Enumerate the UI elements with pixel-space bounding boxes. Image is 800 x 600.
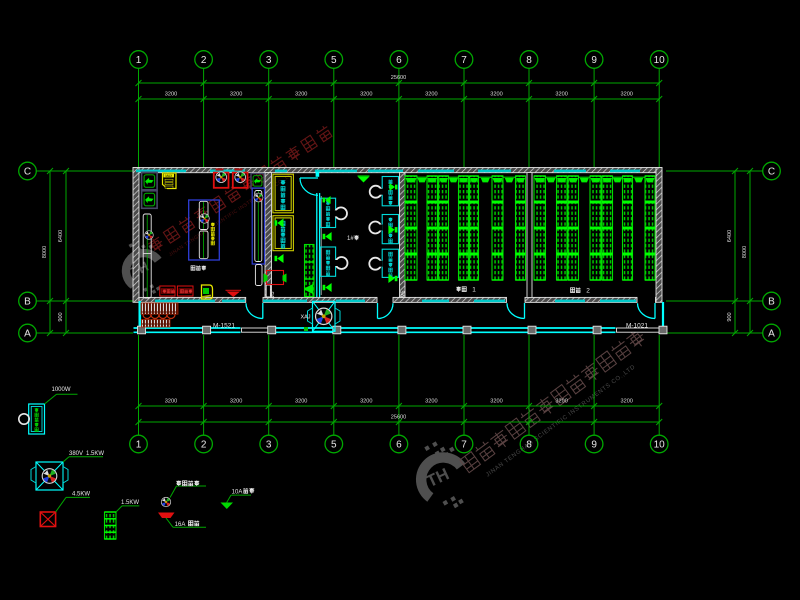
svg-text:A: A [24, 328, 31, 339]
svg-text:B: B [24, 296, 31, 307]
svg-text:4.5KW: 4.5KW [72, 492, 90, 498]
svg-text:5: 5 [331, 439, 337, 450]
svg-text:3200: 3200 [165, 399, 177, 405]
svg-text:M-1021: M-1021 [626, 323, 648, 330]
svg-text:9: 9 [591, 55, 597, 66]
svg-text:1.5KW: 1.5KW [121, 500, 139, 506]
svg-text:2: 2 [201, 439, 207, 450]
svg-text:10: 10 [654, 439, 666, 450]
svg-text:3200: 3200 [490, 92, 502, 98]
svg-text:3200: 3200 [360, 399, 372, 405]
svg-text:3200: 3200 [555, 399, 567, 405]
svg-text:6: 6 [396, 55, 402, 66]
svg-text:1#: 1# [347, 236, 354, 242]
svg-text:7: 7 [461, 55, 467, 66]
svg-text:8000: 8000 [742, 246, 748, 258]
svg-text:3200: 3200 [555, 92, 567, 98]
svg-text:1: 1 [136, 55, 142, 66]
svg-text:M-1521: M-1521 [213, 323, 235, 330]
svg-text:3: 3 [266, 439, 272, 450]
svg-text:1000W: 1000W [51, 387, 70, 393]
svg-text:9: 9 [591, 439, 597, 450]
svg-text:6: 6 [396, 439, 402, 450]
svg-text:6400: 6400 [727, 230, 733, 242]
svg-text:1: 1 [472, 287, 476, 294]
svg-text:3200: 3200 [230, 92, 242, 98]
svg-text:B: B [768, 296, 775, 307]
svg-text:16A: 16A [175, 522, 186, 528]
svg-text:7: 7 [461, 439, 467, 450]
svg-text:25600: 25600 [391, 75, 407, 81]
svg-text:2: 2 [201, 55, 207, 66]
svg-text:8000: 8000 [42, 246, 48, 258]
svg-text:1: 1 [136, 439, 142, 450]
svg-text:MAX: MAX [165, 174, 173, 178]
svg-text:2: 2 [586, 288, 590, 295]
svg-text:3200: 3200 [620, 399, 632, 405]
svg-text:A: A [768, 328, 775, 339]
svg-text:25600: 25600 [391, 415, 407, 421]
svg-text:3200: 3200 [295, 399, 307, 405]
svg-text:3200: 3200 [360, 92, 372, 98]
svg-text:3: 3 [266, 55, 272, 66]
svg-text:M5: M5 [270, 291, 276, 298]
svg-text:900: 900 [58, 312, 64, 321]
svg-text:8: 8 [526, 55, 532, 66]
svg-text:3200: 3200 [425, 92, 437, 98]
svg-text:3200: 3200 [425, 399, 437, 405]
svg-text:6400: 6400 [58, 230, 64, 242]
svg-text:XAJ: XAJ [300, 315, 310, 321]
svg-text:900: 900 [727, 312, 733, 321]
svg-text:C: C [768, 166, 775, 177]
svg-text:380V: 380V [69, 451, 83, 457]
svg-text:10A: 10A [232, 490, 243, 496]
svg-text:3200: 3200 [490, 399, 502, 405]
svg-text:3200: 3200 [620, 92, 632, 98]
svg-text:5: 5 [331, 55, 337, 66]
svg-text:10: 10 [654, 55, 666, 66]
svg-text:3200: 3200 [165, 92, 177, 98]
svg-text:M5: M5 [401, 290, 407, 297]
svg-text:8: 8 [526, 439, 532, 450]
svg-text:3200: 3200 [295, 92, 307, 98]
svg-text:C: C [24, 166, 31, 177]
svg-text:1.5KW: 1.5KW [86, 451, 104, 457]
svg-text:3200: 3200 [230, 399, 242, 405]
